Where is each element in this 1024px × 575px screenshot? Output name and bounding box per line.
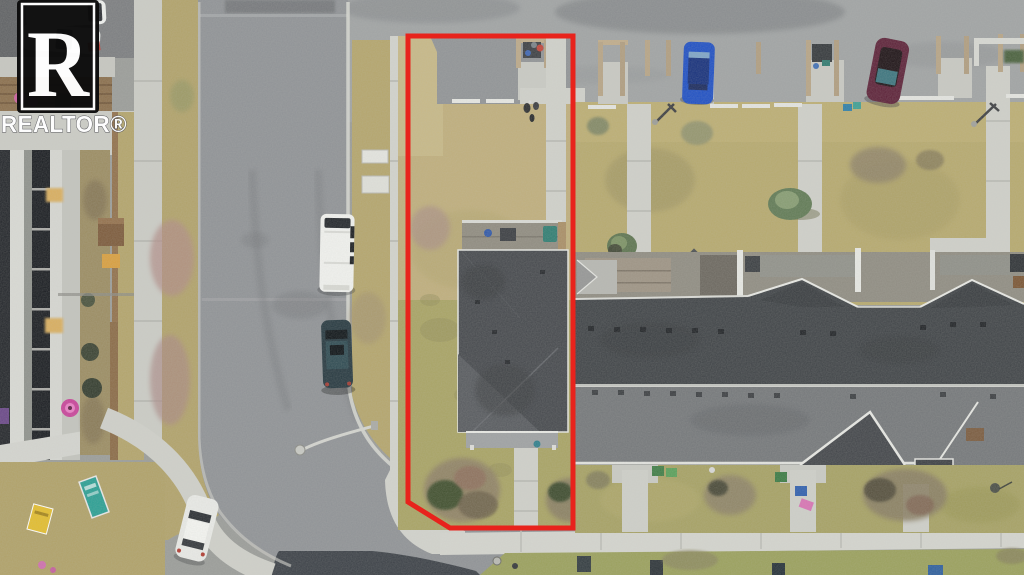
realtor-logo-letter: R [27,11,90,117]
aerial-photo: R REALTOR® [0,0,1024,575]
aerial-photo-stage: R REALTOR® [0,0,1024,575]
photo-grain [0,0,1024,575]
realtor-watermark-text: REALTOR® [1,111,127,137]
